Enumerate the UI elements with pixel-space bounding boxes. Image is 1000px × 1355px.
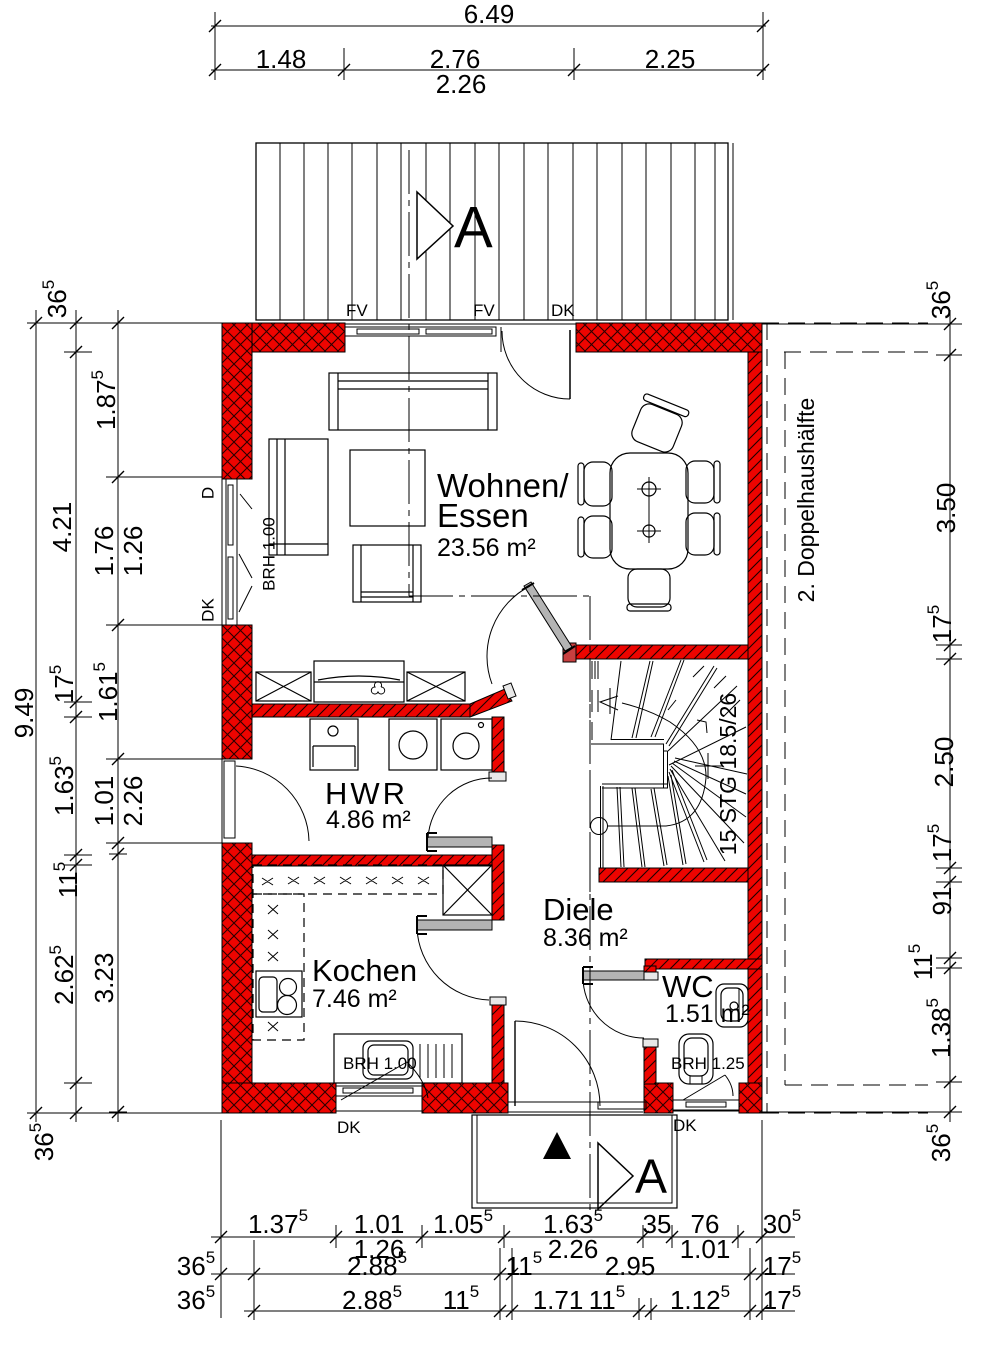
svg-text:1.26: 1.26 (118, 526, 148, 577)
svg-text:2.26: 2.26 (436, 69, 487, 99)
svg-text:2.26: 2.26 (118, 776, 148, 827)
svg-text:DK: DK (551, 301, 575, 320)
svg-text:Kochen: Kochen (312, 953, 417, 988)
svg-text:2. Doppelhaushälfte: 2. Doppelhaushälfte (793, 398, 819, 603)
svg-text:DK: DK (337, 1118, 361, 1137)
svg-text:A: A (454, 196, 493, 261)
svg-text:BRH 1.00: BRH 1.00 (343, 1054, 417, 1073)
svg-text:3.50: 3.50 (931, 483, 961, 534)
svg-text:DK: DK (199, 598, 218, 622)
svg-text:A: A (635, 1151, 667, 1204)
svg-text:4.21: 4.21 (47, 502, 77, 553)
svg-text:91: 91 (927, 887, 957, 916)
svg-text:Essen: Essen (437, 497, 529, 534)
svg-text:15 STG 18.5/26: 15 STG 18.5/26 (715, 693, 741, 855)
svg-text:2.26: 2.26 (548, 1234, 599, 1264)
svg-text:1.48: 1.48 (256, 44, 307, 74)
svg-text:FV: FV (346, 301, 368, 320)
svg-text:DK: DK (673, 1116, 697, 1135)
svg-text:2.50: 2.50 (929, 737, 959, 788)
svg-text:1.01: 1.01 (680, 1234, 731, 1264)
svg-text:WC: WC (662, 969, 714, 1004)
svg-text:FV: FV (473, 301, 495, 320)
svg-text:6.49: 6.49 (464, 0, 515, 29)
svg-text:7.46 m²: 7.46 m² (312, 985, 397, 1013)
svg-text:23.56 m²: 23.56 m² (437, 534, 536, 562)
svg-text:3.23: 3.23 (89, 953, 119, 1004)
svg-text:4.86 m²: 4.86 m² (326, 806, 411, 834)
svg-text:2.25: 2.25 (645, 44, 696, 74)
svg-text:Diele: Diele (543, 892, 614, 927)
svg-text:1.76: 1.76 (89, 526, 119, 577)
svg-text:1.71: 1.71 (533, 1285, 584, 1315)
svg-text:35: 35 (643, 1209, 672, 1239)
svg-text:1.01: 1.01 (89, 776, 119, 827)
svg-text:2.95: 2.95 (605, 1251, 656, 1281)
svg-text:8.36 m²: 8.36 m² (543, 924, 628, 952)
svg-text:9.49: 9.49 (9, 688, 39, 739)
svg-text:D: D (199, 487, 218, 499)
